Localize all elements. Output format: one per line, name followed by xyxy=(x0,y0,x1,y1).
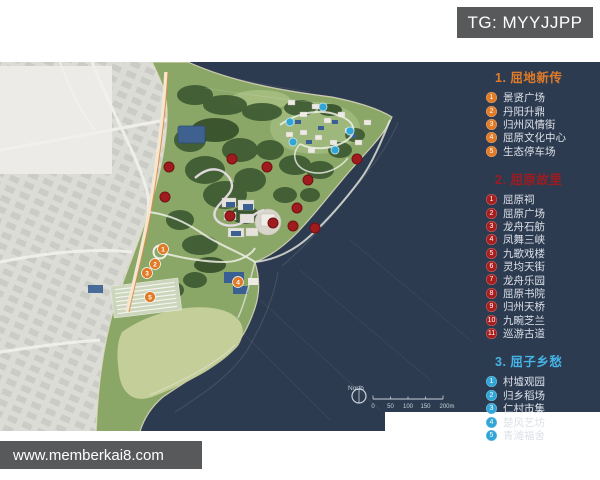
poi-marker-red xyxy=(303,175,313,185)
legend-items: 1景贤广场2丹阳升鼎3归州风情街4屈原文化中心5生态停车场 xyxy=(486,91,598,158)
legend-item-number-badge: 7 xyxy=(486,274,497,285)
legend-item-label: 生态停车场 xyxy=(503,144,556,159)
legend-item-number-badge: 6 xyxy=(486,261,497,272)
legend-section-number: 3. xyxy=(495,355,506,369)
telegram-watermark: TG: MYYJJPP xyxy=(457,7,593,38)
legend-item: 1景贤广场 xyxy=(486,91,598,104)
legend-item-number-badge: 4 xyxy=(486,132,497,143)
legend-item-number-badge: 11 xyxy=(486,328,497,339)
legend-section-title: 1. 屈地新传 xyxy=(495,67,598,86)
watermark-text: TG: MYYJJPP xyxy=(467,13,582,33)
pond xyxy=(178,126,205,143)
legend-items: 1屈原祠2屈原广场3龙舟石舫4凤舞三峡5九歌戏楼6灵均天街7龙舟乐园8屈原书院9… xyxy=(486,193,598,340)
poi-marker-blue xyxy=(319,103,327,111)
legend-item: 3归州风情街 xyxy=(486,118,598,131)
legend-item: 3仁村市集 xyxy=(486,402,598,415)
poi-marker-red xyxy=(160,192,170,202)
legend-item-label: 巡游古道 xyxy=(503,326,545,341)
legend-section-1: 1. 屈地新传 1景贤广场2丹阳升鼎3归州风情街4屈原文化中心5生态停车场 xyxy=(486,67,598,158)
legend-item: 6灵均天街 xyxy=(486,260,598,273)
legend-item-number-badge: 4 xyxy=(486,234,497,245)
legend-item-number-badge: 1 xyxy=(486,92,497,103)
poi-marker-orange-number: 4 xyxy=(236,279,240,286)
legend-item: 7龙舟乐园 xyxy=(486,273,598,286)
legend-item-number-badge: 2 xyxy=(486,106,497,117)
poi-marker-blue xyxy=(289,138,297,146)
legend-item: 1村墟观园 xyxy=(486,375,598,388)
poi-marker-orange-number: 1 xyxy=(161,246,165,253)
legend-section-number: 1. xyxy=(495,71,506,85)
legend-item-number-badge: 3 xyxy=(486,221,497,232)
open-lot xyxy=(0,66,112,174)
website-url-text: www.memberkai8.com xyxy=(13,447,164,464)
legend-item: 1屈原祠 xyxy=(486,193,598,206)
legend-item: 4屈原文化中心 xyxy=(486,131,598,144)
legend-item-number-badge: 1 xyxy=(486,376,497,387)
legend-item-number-badge: 5 xyxy=(486,248,497,259)
poi-marker-red xyxy=(288,221,298,231)
poi-marker-orange-number: 2 xyxy=(153,261,157,268)
poi-marker-orange-number: 3 xyxy=(145,270,149,277)
legend-item: 2丹阳升鼎 xyxy=(486,104,598,117)
legend-section-title: 3. 屈子乡愁 xyxy=(495,351,598,370)
scale-label: 50 xyxy=(387,404,394,410)
legend-item: 2归乡稻场 xyxy=(486,389,598,402)
legend-item-number-badge: 9 xyxy=(486,301,497,312)
poi-marker-orange-number: 5 xyxy=(148,294,152,301)
poi-marker-red xyxy=(310,223,320,233)
legend-item-number-badge: 5 xyxy=(486,430,497,441)
legend-item-number-badge: 2 xyxy=(486,390,497,401)
legend-section-2: 2. 屈原故里 1屈原祠2屈原广场3龙舟石舫4凤舞三峡5九歌戏楼6灵均天街7龙舟… xyxy=(486,169,598,340)
poi-marker-blue xyxy=(331,146,339,154)
poi-marker-red xyxy=(227,154,237,164)
poi-marker-blue xyxy=(346,127,354,135)
legend-item: 2屈原广场 xyxy=(486,206,598,219)
legend-section-3: 3. 屈子乡愁 1村墟观园2归乡稻场3仁村市集4楚风艺坊5青滩福舍 xyxy=(486,351,598,442)
poi-marker-red xyxy=(292,203,302,213)
poi-marker-red xyxy=(268,218,278,228)
blue-roof-building xyxy=(88,285,103,293)
legend-item: 3龙舟石舫 xyxy=(486,220,598,233)
legend-item: 5九歌戏楼 xyxy=(486,247,598,260)
scale-label: 200m xyxy=(439,404,454,410)
legend-item: 10九畹芝兰 xyxy=(486,313,598,326)
legend-item-number-badge: 3 xyxy=(486,403,497,414)
legend-item: 5青滩福舍 xyxy=(486,429,598,442)
legend-item-number-badge: 3 xyxy=(486,119,497,130)
legend-item-number-badge: 8 xyxy=(486,288,497,299)
legend-item: 11巡游古道 xyxy=(486,327,598,340)
legend-item: 4凤舞三峡 xyxy=(486,233,598,246)
legend-section-title: 2. 屈原故里 xyxy=(495,169,598,188)
legend-panel: 1. 屈地新传 1景贤广场2丹阳升鼎3归州风情街4屈原文化中心5生态停车场 2.… xyxy=(486,67,598,452)
scale-label: 150 xyxy=(420,404,431,410)
legend-section-number: 2. xyxy=(495,173,506,187)
legend-items: 1村墟观园2归乡稻场3仁村市集4楚风艺坊5青滩福舍 xyxy=(486,375,598,442)
poi-marker-red xyxy=(352,154,362,164)
poi-marker-red xyxy=(164,162,174,172)
scale-label: 100 xyxy=(403,404,414,410)
north-label: North xyxy=(348,385,364,392)
legend-item-number-badge: 2 xyxy=(486,208,497,219)
legend-item-number-badge: 4 xyxy=(486,417,497,428)
legend-item: 5生态停车场 xyxy=(486,145,598,158)
poi-marker-red xyxy=(225,211,235,221)
legend-item-number-badge: 10 xyxy=(486,315,497,326)
poi-marker-blue xyxy=(286,118,294,126)
legend-item: 9归州天桥 xyxy=(486,300,598,313)
legend-item-number-badge: 5 xyxy=(486,146,497,157)
legend-item-number-badge: 1 xyxy=(486,194,497,205)
legend-item: 4楚风艺坊 xyxy=(486,415,598,428)
poi-marker-red xyxy=(262,162,272,172)
legend-item-label: 青滩福舍 xyxy=(503,428,545,443)
website-watermark-bar: www.memberkai8.com xyxy=(0,441,202,469)
legend-item: 8屈原书院 xyxy=(486,287,598,300)
